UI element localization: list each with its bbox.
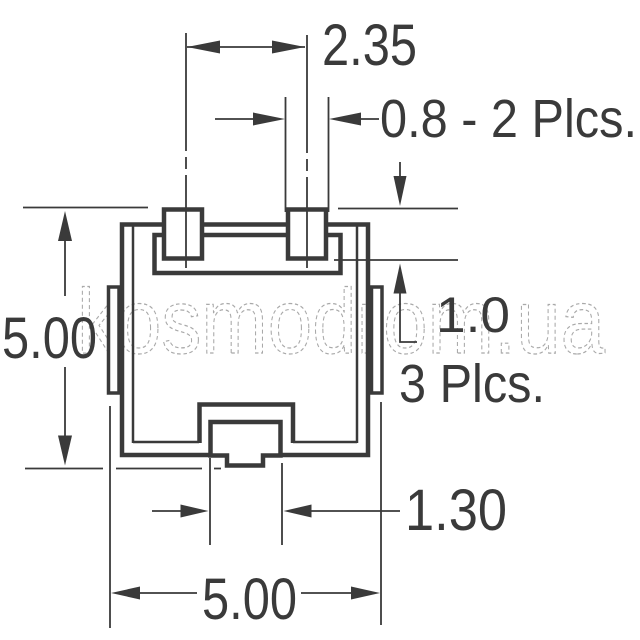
arrow-width-right [351,587,380,600]
dim-label-bottom-lead-width: 1.30 [405,478,507,543]
arrow-lead-length-down [394,176,407,206]
arrow-lead-width-right [329,113,361,126]
dim-label-lead-length: 1.0 [436,287,510,343]
dim-label-lead-width: 0.8 - 2 Plcs. [380,89,637,149]
dim-label-lead-spacing: 2.35 [322,13,417,78]
arrow-height-up [58,211,72,241]
arrow-bottom-lead-right [284,505,312,518]
dim-label-lead-length-places: 3 Plcs. [399,354,545,414]
arrow-bottom-lead-left [181,505,209,518]
arrow-lead-spacing-right [272,41,305,54]
dimension-drawing-svg: kosmodrom.ua [0,0,640,640]
top-lead-left [164,210,202,259]
arrow-lead-width-left [253,113,285,126]
side-tab-right [372,287,383,393]
bottom-lead [211,422,281,466]
technical-drawing-canvas: kosmodrom.ua [0,0,640,640]
arrow-width-left [111,587,140,600]
arrow-lead-spacing-left [187,41,220,54]
dim-label-body-height: 5.00 [2,306,97,371]
side-tab-left [109,287,120,393]
arrow-height-down [58,436,72,466]
dim-label-body-width: 5.00 [202,567,297,632]
